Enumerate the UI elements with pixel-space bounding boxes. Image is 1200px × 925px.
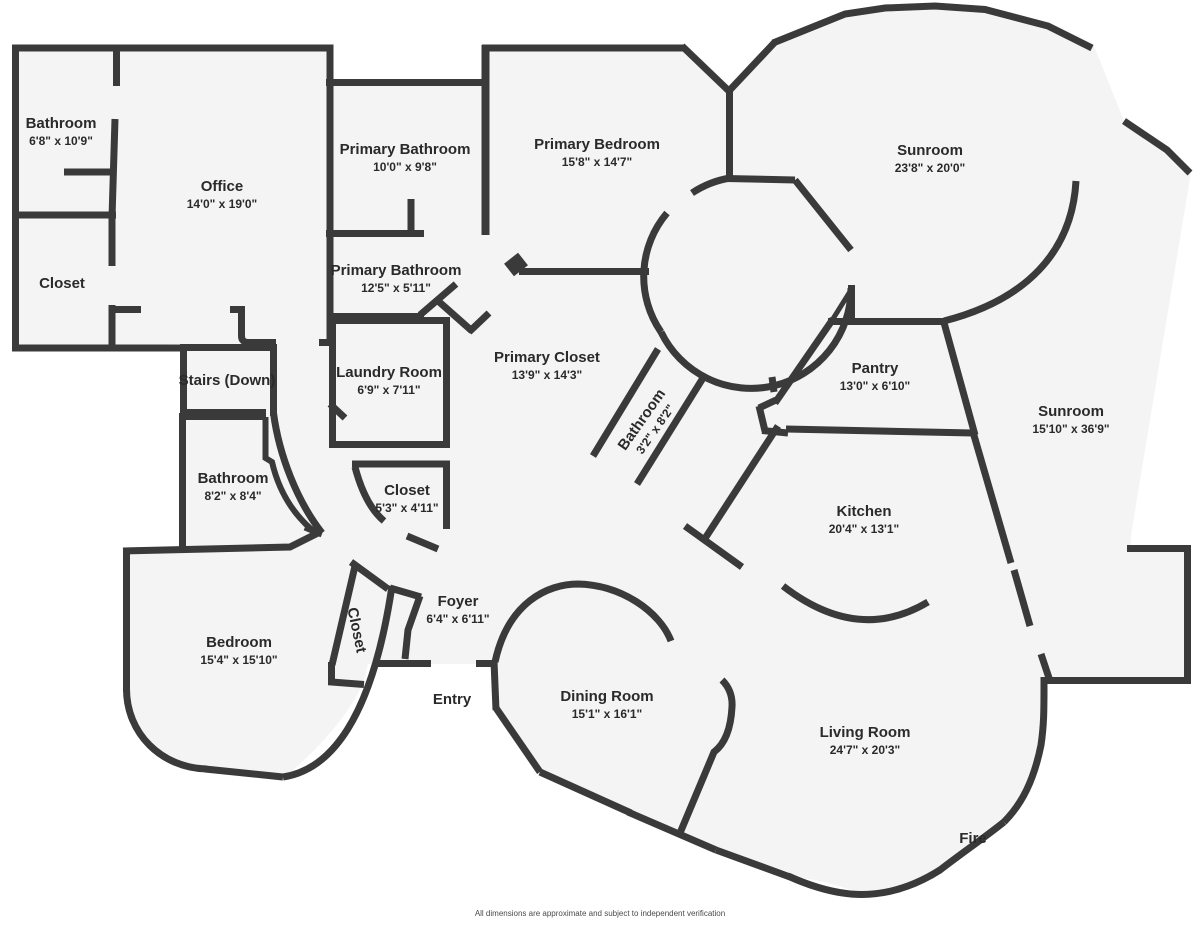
svg-text:Closet: Closet [384, 482, 430, 499]
svg-text:Living Room: Living Room [820, 724, 911, 741]
svg-text:Closet: Closet [39, 275, 85, 292]
svg-text:Bathroom: Bathroom [198, 470, 269, 487]
svg-text:5'3" x 4'11": 5'3" x 4'11" [375, 501, 438, 515]
svg-text:All dimensions are approximate: All dimensions are approximate and subje… [475, 909, 725, 918]
svg-text:8'2" x 8'4": 8'2" x 8'4" [204, 489, 261, 503]
svg-text:Primary Bathroom: Primary Bathroom [331, 262, 462, 279]
svg-text:6'4" x 6'11": 6'4" x 6'11" [426, 612, 489, 626]
svg-text:12'5" x 5'11": 12'5" x 5'11" [361, 281, 431, 295]
svg-text:Primary Closet: Primary Closet [494, 349, 600, 366]
svg-text:Stairs (Down): Stairs (Down) [179, 372, 276, 389]
svg-text:15'8" x 14'7": 15'8" x 14'7" [562, 155, 632, 169]
svg-text:10'0" x 9'8": 10'0" x 9'8" [373, 160, 437, 174]
svg-text:24'7" x 20'3": 24'7" x 20'3" [830, 743, 900, 757]
svg-text:Kitchen: Kitchen [836, 503, 891, 520]
svg-text:15'10" x 36'9": 15'10" x 36'9" [1032, 422, 1109, 436]
svg-text:Foyer: Foyer [438, 593, 479, 610]
svg-text:Sunroom: Sunroom [1038, 403, 1104, 420]
svg-text:Dining Room: Dining Room [560, 688, 653, 705]
svg-text:Primary Bedroom: Primary Bedroom [534, 136, 660, 153]
svg-text:Bathroom: Bathroom [26, 115, 97, 132]
svg-text:20'4" x 13'1": 20'4" x 13'1" [829, 522, 899, 536]
svg-text:6'9" x 7'11": 6'9" x 7'11" [357, 383, 420, 397]
svg-text:Entry: Entry [433, 691, 472, 708]
svg-text:14'0" x 19'0": 14'0" x 19'0" [187, 197, 257, 211]
svg-text:15'4" x 15'10": 15'4" x 15'10" [200, 653, 277, 667]
svg-text:Office: Office [201, 178, 244, 195]
svg-text:Sunroom: Sunroom [897, 142, 963, 159]
svg-text:13'9" x 14'3": 13'9" x 14'3" [512, 368, 582, 382]
svg-text:23'8" x 20'0": 23'8" x 20'0" [895, 161, 965, 175]
svg-text:Pantry: Pantry [852, 360, 899, 377]
svg-text:Primary Bathroom: Primary Bathroom [340, 141, 471, 158]
svg-text:Bedroom: Bedroom [206, 634, 272, 651]
svg-text:Fire: Fire [959, 830, 987, 847]
svg-text:Laundry Room: Laundry Room [336, 364, 442, 381]
svg-text:6'8" x 10'9": 6'8" x 10'9" [29, 134, 93, 148]
svg-text:15'1" x 16'1": 15'1" x 16'1" [572, 707, 642, 721]
svg-text:13'0" x 6'10": 13'0" x 6'10" [840, 379, 910, 393]
